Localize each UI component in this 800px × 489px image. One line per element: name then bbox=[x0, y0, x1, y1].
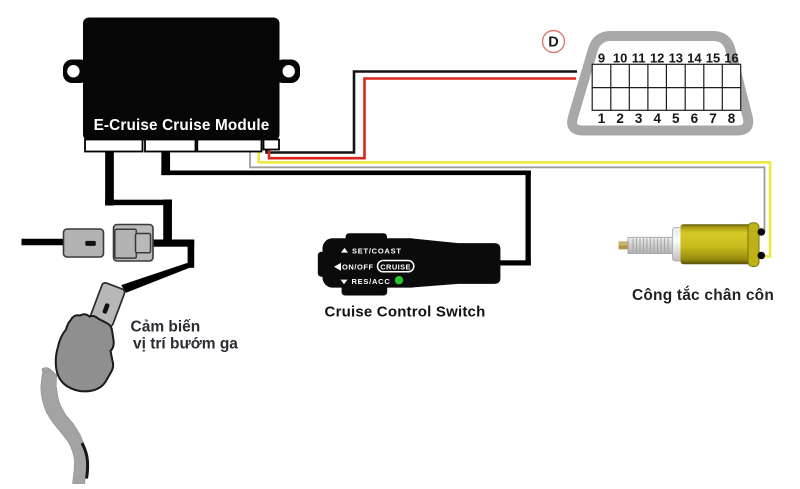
svg-text:CRUISE: CRUISE bbox=[380, 262, 411, 271]
svg-text:Công tắc chân côn: Công tắc chân côn bbox=[632, 286, 774, 304]
svg-text:10: 10 bbox=[613, 51, 627, 66]
svg-text:13: 13 bbox=[669, 51, 683, 66]
svg-text:7: 7 bbox=[709, 111, 717, 126]
svg-text:vị trí bướm ga: vị trí bướm ga bbox=[133, 336, 238, 353]
svg-text:E-Cruise Cruise Module: E-Cruise Cruise Module bbox=[94, 117, 270, 134]
svg-text:5: 5 bbox=[672, 111, 680, 126]
svg-text:Cruise Control Switch: Cruise Control Switch bbox=[325, 304, 486, 321]
svg-text:12: 12 bbox=[650, 51, 664, 66]
svg-text:ON/OFF: ON/OFF bbox=[342, 263, 374, 272]
svg-text:3: 3 bbox=[635, 111, 643, 126]
svg-text:15: 15 bbox=[706, 51, 720, 66]
svg-text:9: 9 bbox=[598, 51, 605, 66]
svg-text:SET/COAST: SET/COAST bbox=[352, 246, 402, 255]
svg-text:14: 14 bbox=[687, 51, 702, 66]
svg-text:4: 4 bbox=[653, 111, 661, 126]
svg-text:6: 6 bbox=[691, 111, 699, 126]
svg-text:Cảm biến: Cảm biến bbox=[131, 319, 201, 336]
svg-text:8: 8 bbox=[728, 111, 736, 126]
svg-text:2: 2 bbox=[616, 111, 624, 126]
svg-text:RES/ACC: RES/ACC bbox=[352, 277, 391, 286]
svg-text:11: 11 bbox=[632, 51, 646, 66]
svg-text:16: 16 bbox=[724, 51, 738, 66]
svg-text:D: D bbox=[548, 35, 558, 51]
svg-text:1: 1 bbox=[598, 111, 606, 126]
